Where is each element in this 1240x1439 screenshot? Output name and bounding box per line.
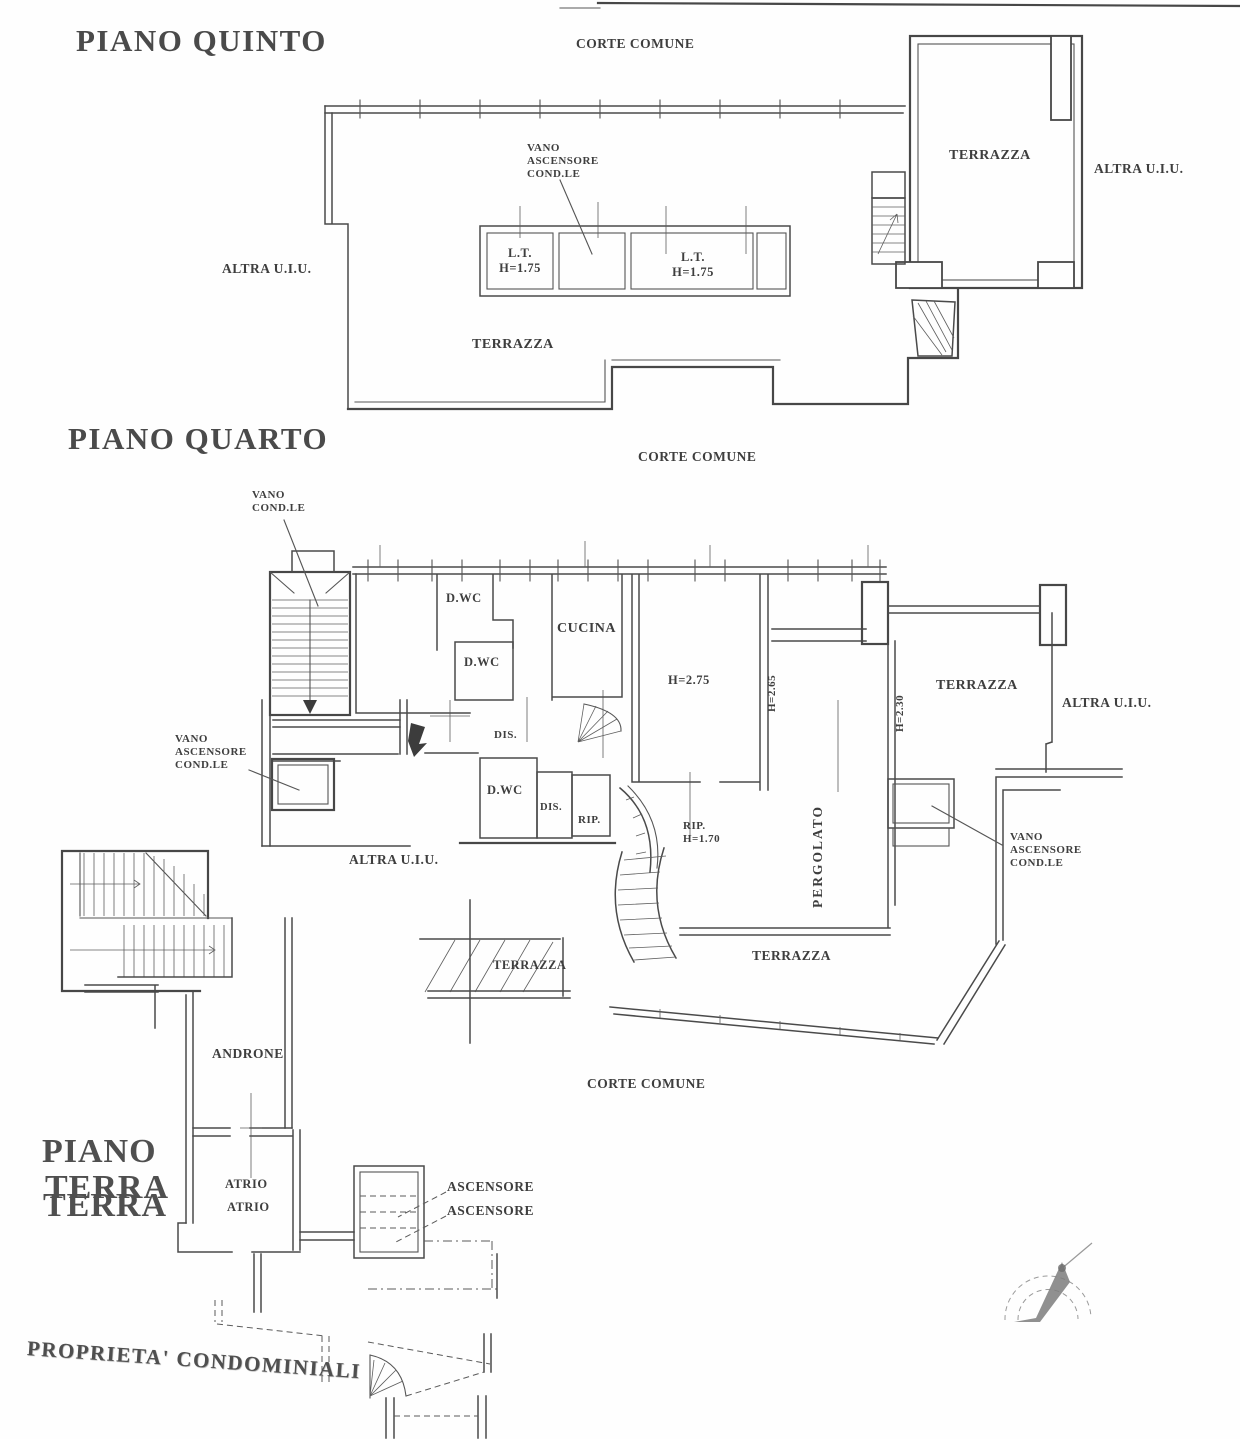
scan-edge-line: [560, 3, 1240, 8]
label-altra-uiu-right-quarto: ALTRA U.I.U.: [1062, 695, 1152, 711]
label-rip-1: RIP.: [578, 814, 601, 827]
label-ascensore-2: ASCENSORE: [447, 1203, 534, 1219]
label-dwc-1: D.WC: [446, 591, 482, 606]
label-h265: H=2.65: [766, 675, 779, 712]
label-androne: ANDRONE: [212, 1046, 284, 1062]
label-pergolato: PERGOLATO: [810, 805, 826, 908]
label-cucina: CUCINA: [557, 621, 616, 638]
label-dwc-3: D.WC: [487, 783, 523, 798]
label-corte-comune-quinto: CORTE COMUNE: [576, 36, 694, 52]
label-terrazza-right-quarto: TERRAZZA: [936, 678, 1018, 695]
label-dis-1: DIS.: [494, 729, 517, 742]
label-vano-ascensore-right-quarto: VANO ASCENSORE COND.LE: [1010, 831, 1082, 871]
label-altra-uiu-right-quinto: ALTRA U.I.U.: [1094, 161, 1184, 177]
label-vano-condle: VANO COND.LE: [252, 489, 305, 515]
title-piano-quarto: PIANO QUARTO: [68, 420, 328, 457]
label-rip-2: RIP. H=1.70: [683, 820, 720, 846]
piano-quinto-plan: [325, 36, 1082, 409]
label-dis-2: DIS.: [540, 802, 562, 815]
label-lt-left: L.T. H=1.75: [487, 246, 553, 276]
label-terrazza-block-quinto: TERRAZZA: [949, 148, 1031, 165]
label-ascensore-1: ASCENSORE: [447, 1179, 534, 1195]
cadastral-floor-plan-page: PIANO QUINTO CORTE COMUNE TERRAZZA ALTRA…: [0, 0, 1240, 1439]
label-dwc-2: D.WC: [464, 655, 500, 670]
label-terrazza-main-quinto: TERRAZZA: [472, 337, 554, 354]
label-vano-ascensore-quinto: VANO ASCENSORE COND.LE: [527, 142, 599, 182]
label-corte-comune-top-quarto: CORTE COMUNE: [638, 449, 756, 465]
title-piano-terra-line1: PIANO: [42, 1132, 157, 1173]
floor-plan-drawing: [0, 0, 1240, 1439]
label-h230: H=2.30: [894, 695, 907, 732]
title-piano-terra-line2-ghost: TERRA: [43, 1186, 167, 1227]
label-terrazza-small: TERRAZZA: [493, 958, 566, 973]
compass-rose: [1005, 1243, 1092, 1322]
title-piano-quinto: PIANO QUINTO: [76, 22, 327, 59]
label-atrio-2: ATRIO: [227, 1200, 270, 1215]
label-h275: H=2.75: [668, 673, 710, 688]
label-lt-right: L.T. H=1.75: [632, 250, 754, 280]
label-altra-uiu-left-quarto: ALTRA U.I.U.: [349, 852, 439, 868]
label-vano-ascensore-left-quarto: VANO ASCENSORE COND.LE: [175, 733, 247, 773]
label-corte-comune-bottom: CORTE COMUNE: [587, 1076, 705, 1092]
label-altra-uiu-left-quinto: ALTRA U.I.U.: [222, 261, 312, 277]
label-terrazza-bottom: TERRAZZA: [752, 948, 831, 964]
label-atrio-1: ATRIO: [225, 1177, 268, 1192]
